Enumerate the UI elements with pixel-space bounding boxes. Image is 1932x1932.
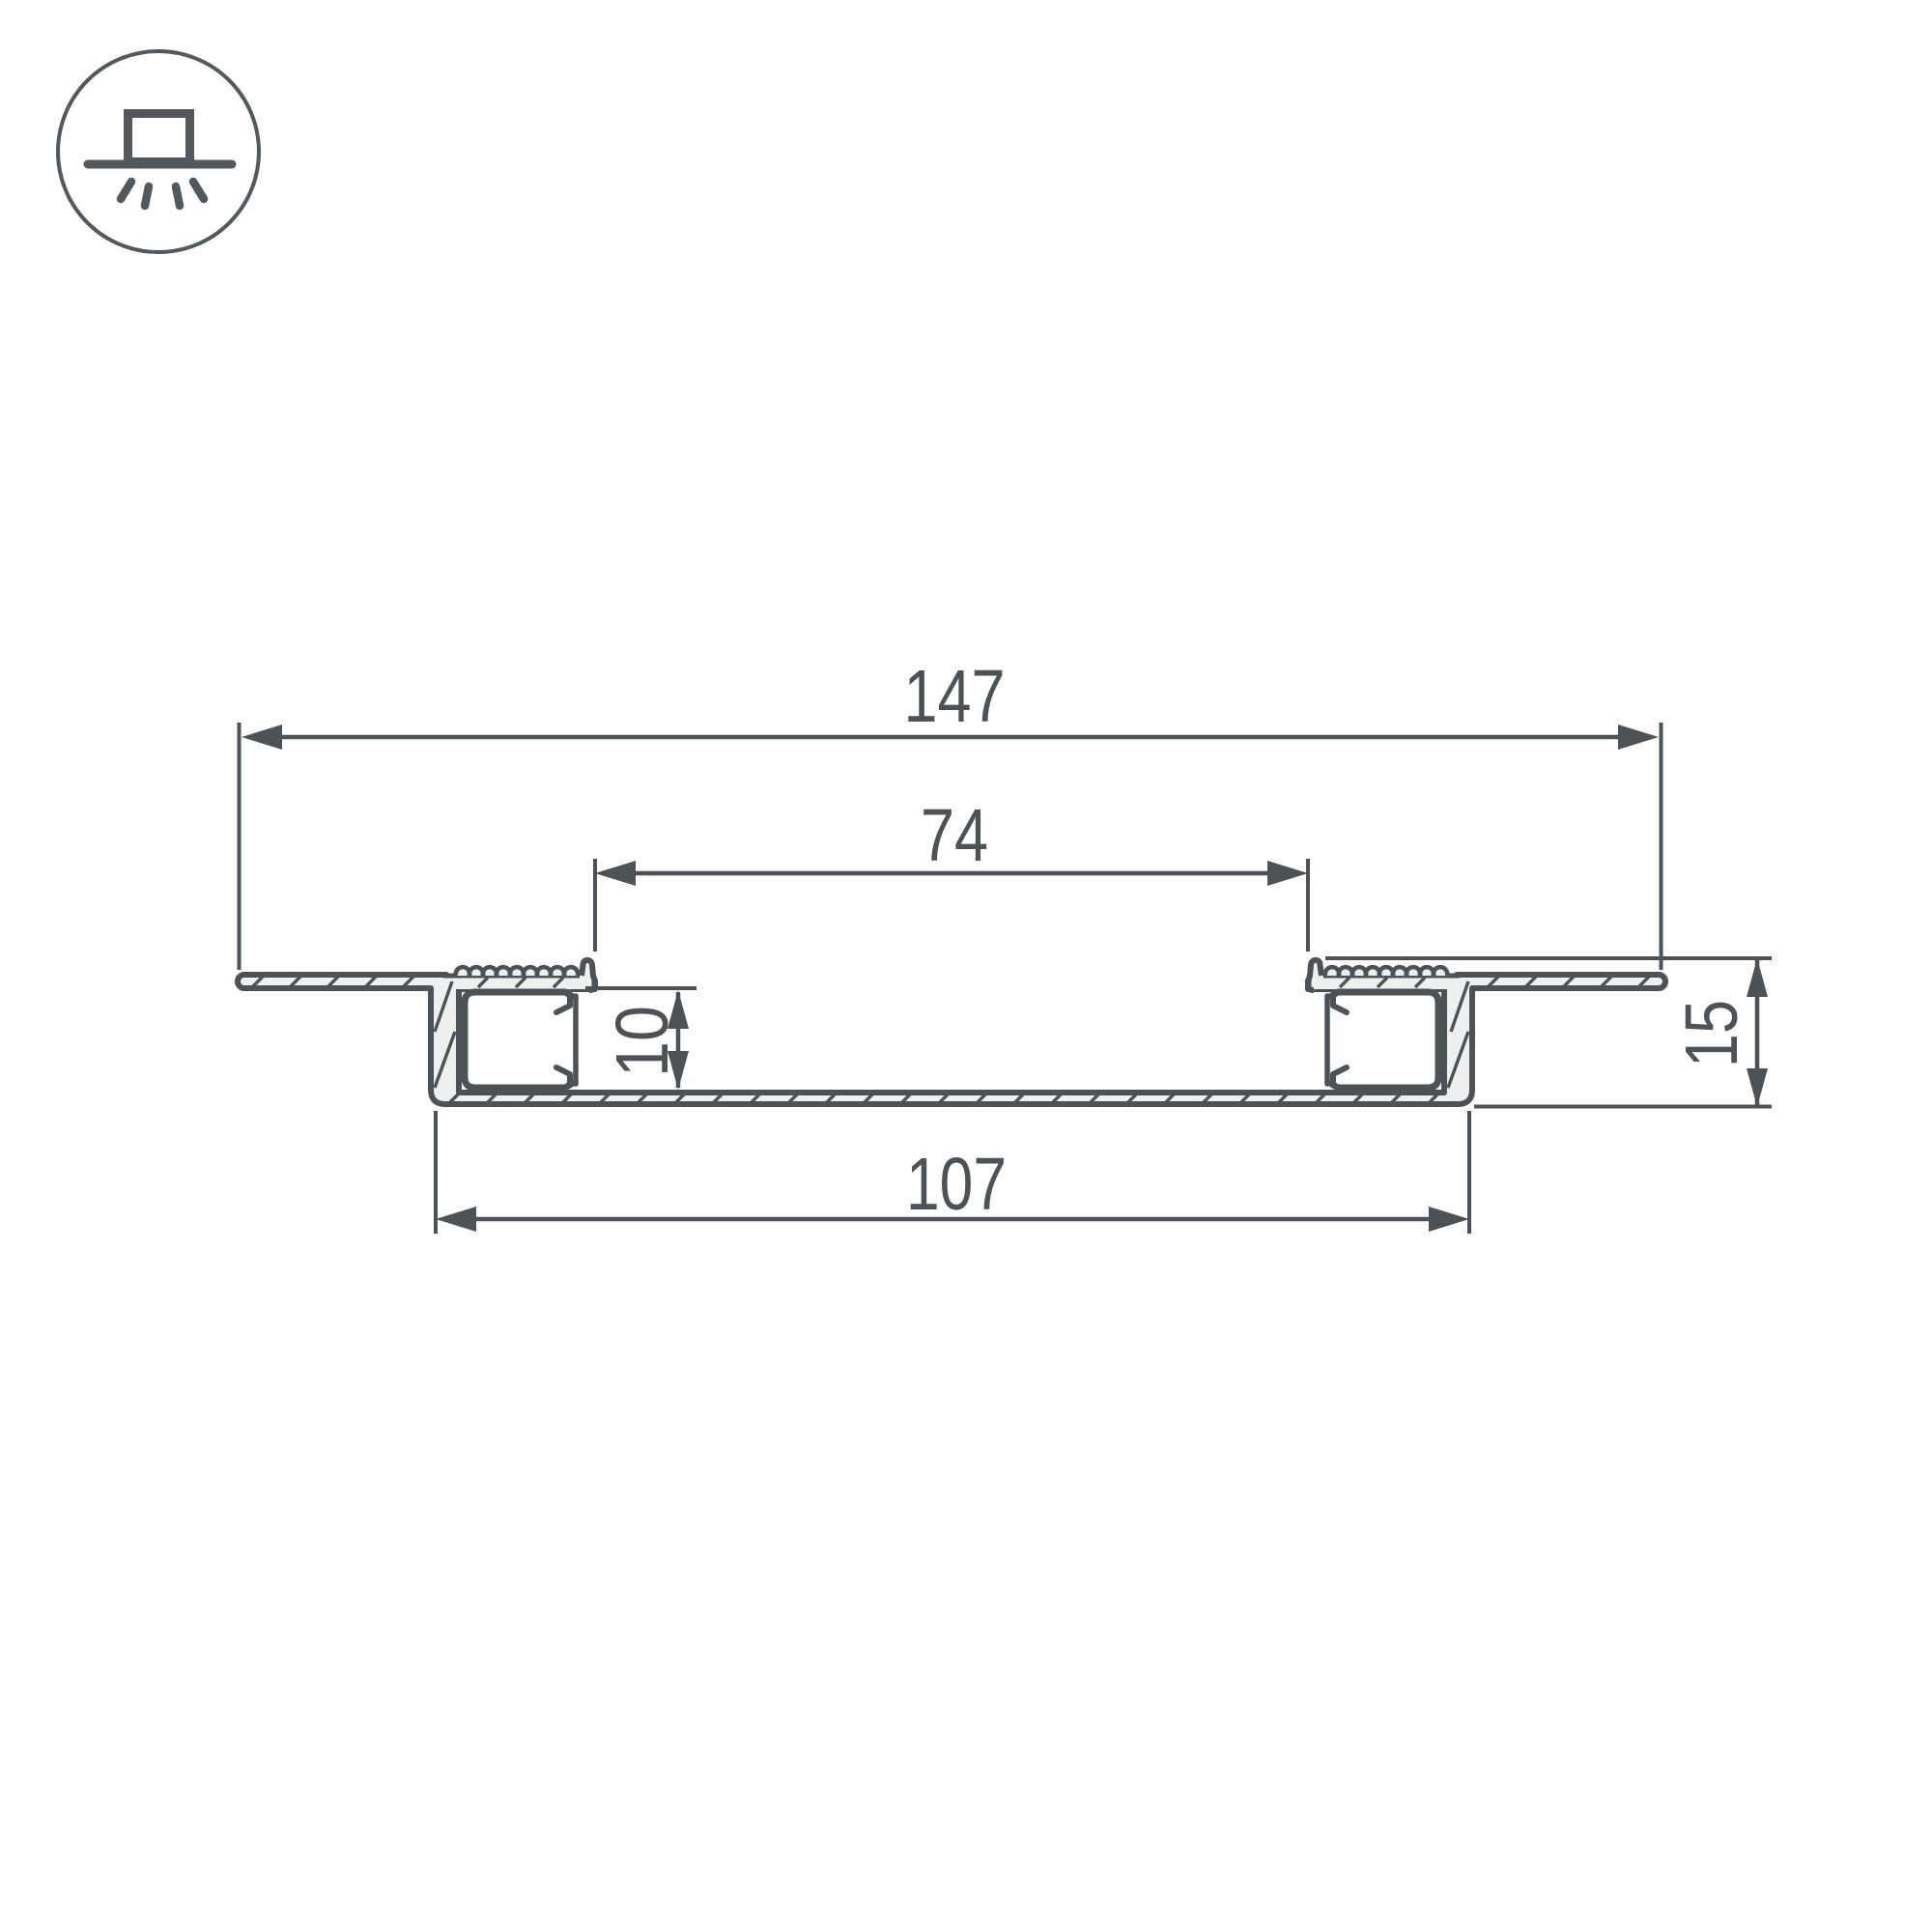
svg-text:15: 15 (1670, 1000, 1753, 1067)
svg-text:74: 74 (921, 794, 988, 877)
svg-text:147: 147 (904, 655, 1006, 738)
svg-text:107: 107 (906, 1143, 1007, 1226)
svg-text:10: 10 (601, 1006, 684, 1077)
